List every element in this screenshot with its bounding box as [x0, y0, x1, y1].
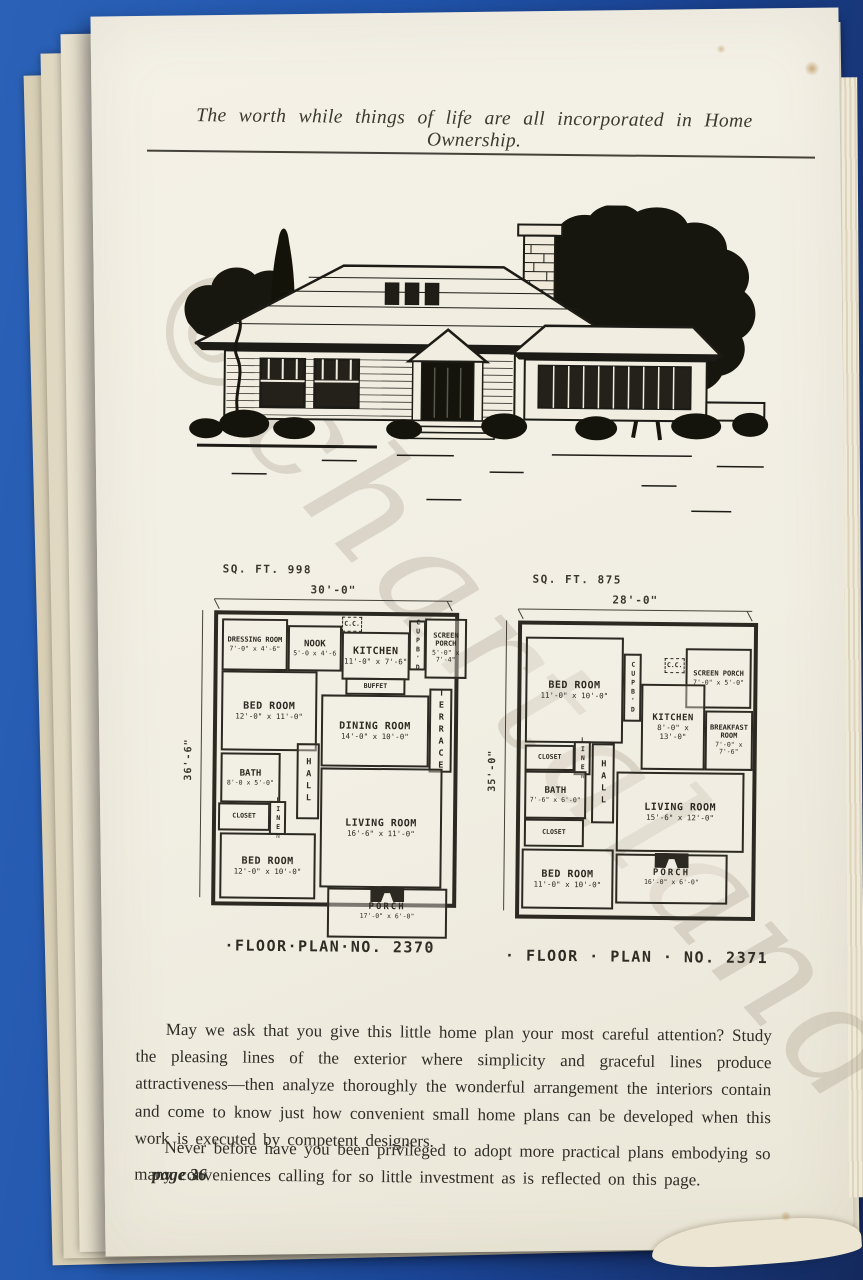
room-terrace: TERRACE [429, 689, 453, 773]
side-dimension: 36'-6" [199, 610, 203, 897]
room-kitchen: KITCHEN 11'-0" x 7'-6" [341, 632, 409, 681]
room-bed-room-2: BED ROOM 11'-0" x 10'-0" [521, 849, 614, 910]
width-dimension: 30'-0" [214, 582, 452, 601]
room-hall: HALL [296, 743, 320, 819]
room-living-room: LIVING ROOM 16'-6" x 11'-0" [319, 767, 442, 888]
room-dressing-room: DRESSING ROOM 7'-0" x 4'-6" [222, 618, 289, 671]
room-bed-room-1: BED ROOM 11'-0" x 10'-0" [525, 637, 624, 744]
room-cc: C.C. [665, 658, 685, 673]
foxing-spot [804, 61, 820, 75]
sqft-label: SQ. FT. 998 [223, 562, 312, 576]
foxing-spot [780, 1211, 792, 1221]
page-content: ©chartaland The worth while things of li… [92, 8, 853, 1256]
foxing-spot [716, 45, 726, 54]
plan-outline: DRESSING ROOM 7'-0" x 4'-6" NOOK 5'-0 x … [211, 610, 459, 908]
porch-step [655, 853, 689, 868]
room-closet-1: CLOSET [525, 745, 575, 772]
room-closet: CLOSET [218, 802, 270, 831]
floor-plan-2370: SQ. FT. 998 30'-0" 36'-6" DRESSING ROOM … [194, 560, 468, 993]
sqft-label: SQ. FT. 875 [532, 573, 621, 587]
room-bath: BATH 8'-0 x 5'-0" [220, 752, 281, 803]
room-dining-room: DINING ROOM 14'-0" x 10'-0" [321, 694, 430, 767]
plan-outline: BED ROOM 11'-0" x 10'-0" CUPB'D C.C. SCR… [515, 620, 758, 920]
room-kitchen: KITCHEN 8'-0" x 13'-0" [641, 684, 706, 771]
room-living-room: LIVING ROOM 15'-6" x 12'-0" [616, 772, 745, 853]
floor-plan-2371: SQ. FT. 875 28'-0" 35'-0" BED ROOM 11'-0… [498, 566, 778, 999]
plan-caption-2370: ·FLOOR·PLAN·NO. 2370 [195, 936, 465, 957]
room-cupboard: CUPB'D [409, 620, 427, 670]
side-dimension: 35'-0" [503, 620, 507, 910]
plan-caption-2371: · FLOOR · PLAN · NO. 2371 [499, 946, 775, 967]
room-porch: PORCH 16'-0" x 6'-0" [615, 854, 728, 905]
room-breakfast-room: BREAKFAST ROOM 7'-0" x 7'-6" [705, 710, 754, 770]
room-bed-room-1: BED ROOM 12'-0" x 11'-0" [221, 670, 318, 751]
room-bed-room-2: BED ROOM 12'-0" x 10'-0" [219, 832, 316, 899]
page-number: page 36 [152, 1165, 207, 1186]
room-cc: C.C. [342, 617, 362, 632]
room-closet-2: CLOSET [524, 819, 584, 848]
room-linen: LINEN [269, 801, 286, 835]
book-photo: ©chartaland The worth while things of li… [0, 0, 863, 1280]
room-hall: HALL [591, 743, 615, 823]
room-nook: NOOK 5'-0 x 4'-6 [288, 625, 342, 672]
room-screen-porch: SCREEN PORCH 5'-0" x 7'-4" [425, 619, 468, 679]
room-bath: BATH 7'-6" x 6'-0" [524, 771, 586, 820]
porch-step [370, 887, 404, 902]
room-buffet: BUFFET [345, 678, 405, 696]
room-porch: PORCH 17'-0" x 6'-0" [327, 887, 448, 938]
page-motto: The worth while things of life are all i… [143, 105, 805, 156]
body-paragraph-2: Never before have you been privileged to… [134, 1133, 771, 1194]
width-dimension: 28'-0" [518, 592, 752, 611]
book-page: ©chartaland The worth while things of li… [90, 7, 853, 1256]
house-illustration [171, 201, 774, 542]
room-cupboard: CUPB'D [623, 654, 642, 722]
